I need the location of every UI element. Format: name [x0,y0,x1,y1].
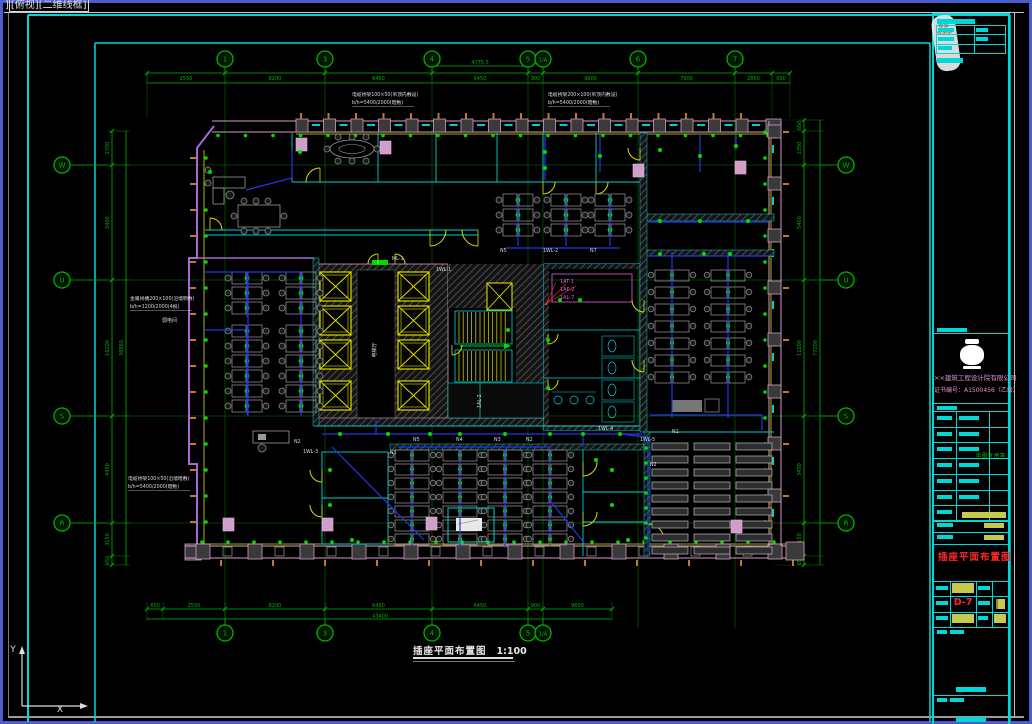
plan-shape [204,520,208,524]
dim-left: 4450 [105,463,111,476]
plan-shape [363,134,369,140]
plan-shape [461,478,477,489]
titleblock-bar [938,28,954,32]
plan-shape [551,209,565,221]
plan-shape [697,124,705,126]
plan-shape [783,235,789,237]
plan-shape [278,540,282,544]
plan-shape [244,134,248,138]
annotation: 电缆桥架200×100(吊顶内敷设) [548,91,617,98]
plan-shape [430,536,436,542]
plan-shape [298,150,302,154]
titleblock-ln [934,596,1008,597]
plan-shape [263,328,269,334]
plan-shape [725,124,733,126]
plan-shape [746,272,752,278]
plan-shape [496,197,502,203]
plan-shape [430,452,436,458]
grid-bubble: 1 [223,56,227,64]
plan-shape [673,321,689,332]
plan-shape [544,197,550,203]
plan-shape [503,209,517,221]
plan-shape [330,540,334,544]
wire-label: 1WL-5 [640,437,655,443]
plan-shape [263,305,269,311]
plan-shape [464,134,468,138]
ucs-y-label: Y [9,645,16,655]
titleblock-bar [978,601,990,605]
plan-shape [648,289,654,295]
plan-shape [601,134,605,138]
sheet-title-text: 插座平面布置图 [413,646,487,657]
plan-shape [736,495,772,502]
plan-shape [379,119,391,132]
titleblock-bar [978,616,988,620]
plan-shape [655,321,671,332]
plan-shape [503,432,507,436]
titleblock-ln [934,521,1008,522]
titleblock-bar [937,19,975,24]
plan-shape [642,124,650,126]
plan-shape [496,212,502,218]
plan-shape [684,134,688,138]
plan-shape [436,536,442,542]
plan-shape [443,534,459,545]
plan-shape [526,494,532,500]
plan-shape [694,456,730,463]
plan-shape [544,269,549,425]
plan-shape [783,339,789,341]
plan-shape [654,119,666,132]
plan-shape [286,370,300,382]
plan-shape [349,134,355,140]
plan-shape [658,148,662,152]
plan-shape [279,373,285,379]
plan-shape [286,340,300,352]
wire-label: N5 [500,248,507,254]
plan-shape [533,520,549,531]
plan-shape [253,198,259,204]
plan-shape [656,134,660,138]
grid-bubble: R [844,520,849,528]
plan-shape [461,534,477,545]
grid-bubble: 3 [323,630,327,638]
plan-shape [729,304,745,315]
plan-shape [532,560,534,566]
plan-shape [568,466,574,472]
plan-shape [263,343,269,349]
plan-shape [196,544,210,559]
plan-shape [598,154,602,158]
titleblock-ln [992,581,993,627]
plan-shape [673,338,689,349]
plan-shape [690,289,696,295]
plan-shape [477,124,485,126]
plan-shape [783,391,789,393]
plan-shape [413,534,429,545]
plan-shape [648,272,654,278]
plan-shape [190,495,196,497]
plan-shape [204,260,208,264]
plan-shape [673,270,689,281]
plan-shape [376,560,378,566]
titleblock-ln [934,427,1008,428]
plan-shape [736,547,772,554]
plan-shape [461,492,477,503]
plan-shape [512,540,516,544]
plan-shape [739,134,743,138]
plan-shape [533,506,549,517]
plan-shape [506,328,510,332]
plan-shape [768,385,781,398]
plan-shape [248,355,262,367]
plan-shape [248,272,262,284]
dim-top: 2550 [180,76,193,82]
plan-shape [588,212,594,218]
plan-shape [543,150,547,154]
dim-bottom: 2550 [188,603,201,609]
plan-shape [658,113,660,119]
plan-shape [516,119,528,132]
plan-shape [263,290,269,296]
titleblock-bar [937,463,952,467]
plan-shape [481,466,487,472]
plan-shape [526,522,532,528]
plan-shape [551,478,567,489]
plan-shape [588,197,594,203]
titleblock-ln [934,403,1008,404]
plan-shape [672,400,702,412]
plan-shape [587,124,595,126]
annotation: 金属线槽200×100(沿墙明敷) [130,295,195,302]
plan-shape [204,390,208,394]
plan-shape [367,124,375,126]
plan-shape [317,305,323,311]
plan-shape [681,119,693,132]
titleblock-yl [952,583,974,593]
grid-bubble: 4 [430,56,435,64]
plan-shape [582,227,588,233]
plan-shape [612,544,626,559]
annotation: 电缆桥架100×50(吊顶内敷设) [352,91,418,98]
grid-bubble: U [843,277,848,285]
dim-right: 5400 [797,216,803,229]
plan-shape [567,194,581,206]
plan-shape [746,340,752,346]
plan-shape [548,113,550,119]
plan-shape [190,209,196,211]
plan-shape [655,338,671,349]
plan-shape [590,540,594,544]
plan-shape [241,198,247,204]
plan-shape [626,119,638,132]
titleblock-bar [978,586,990,590]
plan-shape [213,188,224,204]
plan-shape [279,275,285,281]
plan-shape [694,547,730,554]
plan-shape [304,540,308,544]
plan-shape [652,469,688,476]
plan-shape [763,234,767,238]
plan-shape [204,156,208,160]
plan-shape [711,338,727,349]
plan-shape [461,464,477,475]
plan-shape [626,538,630,542]
plan-shape [225,388,231,394]
plan-shape [611,224,625,236]
plan-shape [690,357,696,363]
plan-shape [232,385,246,397]
plan-shape [413,478,429,489]
plan-shape [768,177,781,190]
plan-shape [481,522,487,528]
plan-shape [526,536,532,542]
sheet-title-underline-2 [413,661,515,662]
plan-shape [356,540,360,544]
plan-shape [480,560,482,566]
plan-shape [279,358,285,364]
plan-shape [595,224,609,236]
dim-bottom: 8200 [269,603,282,609]
plan-shape [204,286,208,290]
plan-shape [317,328,323,334]
plan-shape [204,468,208,472]
plan-shape [763,390,767,394]
grid-bubble: R [60,520,65,528]
plan-shape [644,446,648,450]
plan-shape [506,506,522,517]
plan-shape [602,380,634,400]
plan-shape [263,373,269,379]
plan-shape [80,703,88,709]
plan-shape [317,373,323,379]
plan-shape [534,212,540,218]
plan-shape [551,194,565,206]
plan-shape [263,275,269,281]
dim-top: 2850 [747,76,760,82]
plan-shape [339,145,365,154]
titleblock-bar [937,432,952,436]
plan-shape [232,325,246,337]
plan-shape [648,340,654,346]
plan-shape [690,340,696,346]
plan-shape [734,144,738,148]
annotation: b/h=5400/2000(暗敷) [548,99,599,106]
plan-shape [388,494,394,500]
grid-bubble: 5 [526,630,530,638]
plan-shape [526,480,532,486]
plan-shape [317,403,323,409]
plan-shape [694,443,730,450]
plan-shape [238,205,280,227]
titleblock-yl [994,614,1006,623]
plan-shape [428,560,430,566]
plan-shape [465,113,467,119]
plan-shape [616,540,620,544]
plan-shape [655,372,671,383]
plan-shape [395,520,411,531]
plan-shape [544,264,640,430]
plan-shape [673,355,689,366]
plan-shape [443,464,459,475]
plan-shape [746,289,752,295]
plan-shape [644,536,648,540]
plan-shape [505,124,513,126]
plan-shape [783,183,789,185]
grid-bubble: S [60,413,65,421]
plan-shape [493,113,495,119]
titleblock-bar [936,601,948,605]
plan-shape [352,544,366,559]
dim-top: 7900 [680,76,693,82]
titleblock-ln [934,458,1008,459]
plan-shape [355,113,357,119]
plan-shape [225,275,231,281]
plan-shape [19,646,25,654]
plan-shape [190,391,196,393]
company-logo [960,345,984,365]
plan-shape [310,505,322,517]
titleblock-ln [934,474,1008,475]
plan-shape [232,370,246,382]
plan-shape [232,340,246,352]
plan-shape [263,358,269,364]
plan-shape [436,494,442,500]
annotation: b/h=1200/2000(4根) [130,303,179,310]
plan-shape [704,323,710,329]
plan-shape [406,119,418,132]
plan-shape [768,125,781,138]
wire-label: 1WL-2 [543,248,558,254]
dim-right: 3450 [797,463,803,476]
grid-bubble: 6 [636,56,641,64]
plan-shape [436,466,442,472]
plan-shape [578,298,582,302]
plan-shape [314,418,544,426]
plan-shape [225,343,231,349]
plan-shape [488,492,504,503]
plan-shape [736,534,772,541]
plan-shape [232,400,246,412]
plan-shape [351,119,363,132]
plan-shape [746,374,752,380]
plan-shape [488,450,504,461]
plan-shape [413,506,429,517]
plan-shape [711,372,727,383]
plan-shape [189,126,214,546]
plan-shape [704,357,710,363]
sheet-title: 插座平面布置图1:100 [413,643,573,657]
dim-left: 5400 [105,216,111,229]
plan-shape [204,442,208,446]
ucs-x-label: X [57,705,63,715]
sheet-title-underline [413,657,513,659]
plan-shape [241,228,247,234]
plan-shape [711,304,727,315]
plan-shape [231,213,237,219]
plan-shape [763,338,767,342]
wire-label: 1WL-3 [303,449,318,455]
plan-shape [763,260,767,264]
plan-shape [328,468,332,472]
plan-shape [506,464,522,475]
dim-right: 650 [797,121,803,131]
plan-shape [652,456,688,463]
grid-bubble: 1/A [539,58,548,64]
plan-shape [783,131,789,133]
wire-label: N7 [590,248,597,254]
plan-shape [519,209,533,221]
plan-shape [388,480,394,486]
plan-shape [204,494,208,498]
plan-shape [596,182,608,194]
plan-shape [286,272,300,284]
plan-shape [279,388,285,394]
plan-shape [488,464,504,475]
titleblock-bar [937,630,947,634]
plan-shape [204,364,208,368]
plan-shape [574,134,578,138]
plan-shape [587,547,596,556]
plan-shape [443,478,459,489]
annotation: b/h=5400/2000(暗敷) [128,483,179,490]
plan-shape [602,358,634,378]
titleblock-ln [936,44,1006,45]
plan-shape [544,119,556,132]
plan-shape [317,358,323,364]
plan-shape [328,503,332,507]
grid-bubble: 1/A [539,632,548,638]
dim-top-sub: 4775.5 [471,60,489,66]
titleblock-bar [937,447,952,451]
plan-shape [690,374,696,380]
plan-shape [395,450,411,461]
grid-bubble: U [59,277,64,285]
grid-bubble: W [59,162,66,170]
plan-shape [567,224,581,236]
cad-canvas[interactable]: 25508200645064509009600790028506504775.5… [0,0,1032,724]
plan-shape [792,560,794,566]
plan-shape [731,520,742,533]
plan-shape [746,357,752,363]
wire-label: N2 [294,439,301,445]
plan-shape [673,372,689,383]
dim-bottom: 900 [531,603,541,609]
plan-shape [225,290,231,296]
plan-shape [543,166,547,170]
plan-shape [544,264,640,269]
plan-shape [279,328,285,334]
plan-shape [335,158,341,164]
grid-bubble: 4 [430,630,435,638]
company-logo [963,366,981,369]
plan-shape [546,338,550,342]
plan-shape [533,450,549,461]
plan-shape [190,417,196,419]
grid-bubble: 7 [733,56,737,64]
titleblock-bar [937,328,967,332]
plan-shape [694,521,730,528]
plan-shape [599,119,611,132]
wire-label: N5 [413,437,420,443]
titleblock-bar [959,495,979,499]
plan-shape [395,124,403,126]
plan-shape [670,124,678,126]
dim-top: 6450 [372,76,385,82]
plan-shape [768,281,781,294]
plan-shape [729,287,745,298]
titleblock-ln [936,53,1006,54]
